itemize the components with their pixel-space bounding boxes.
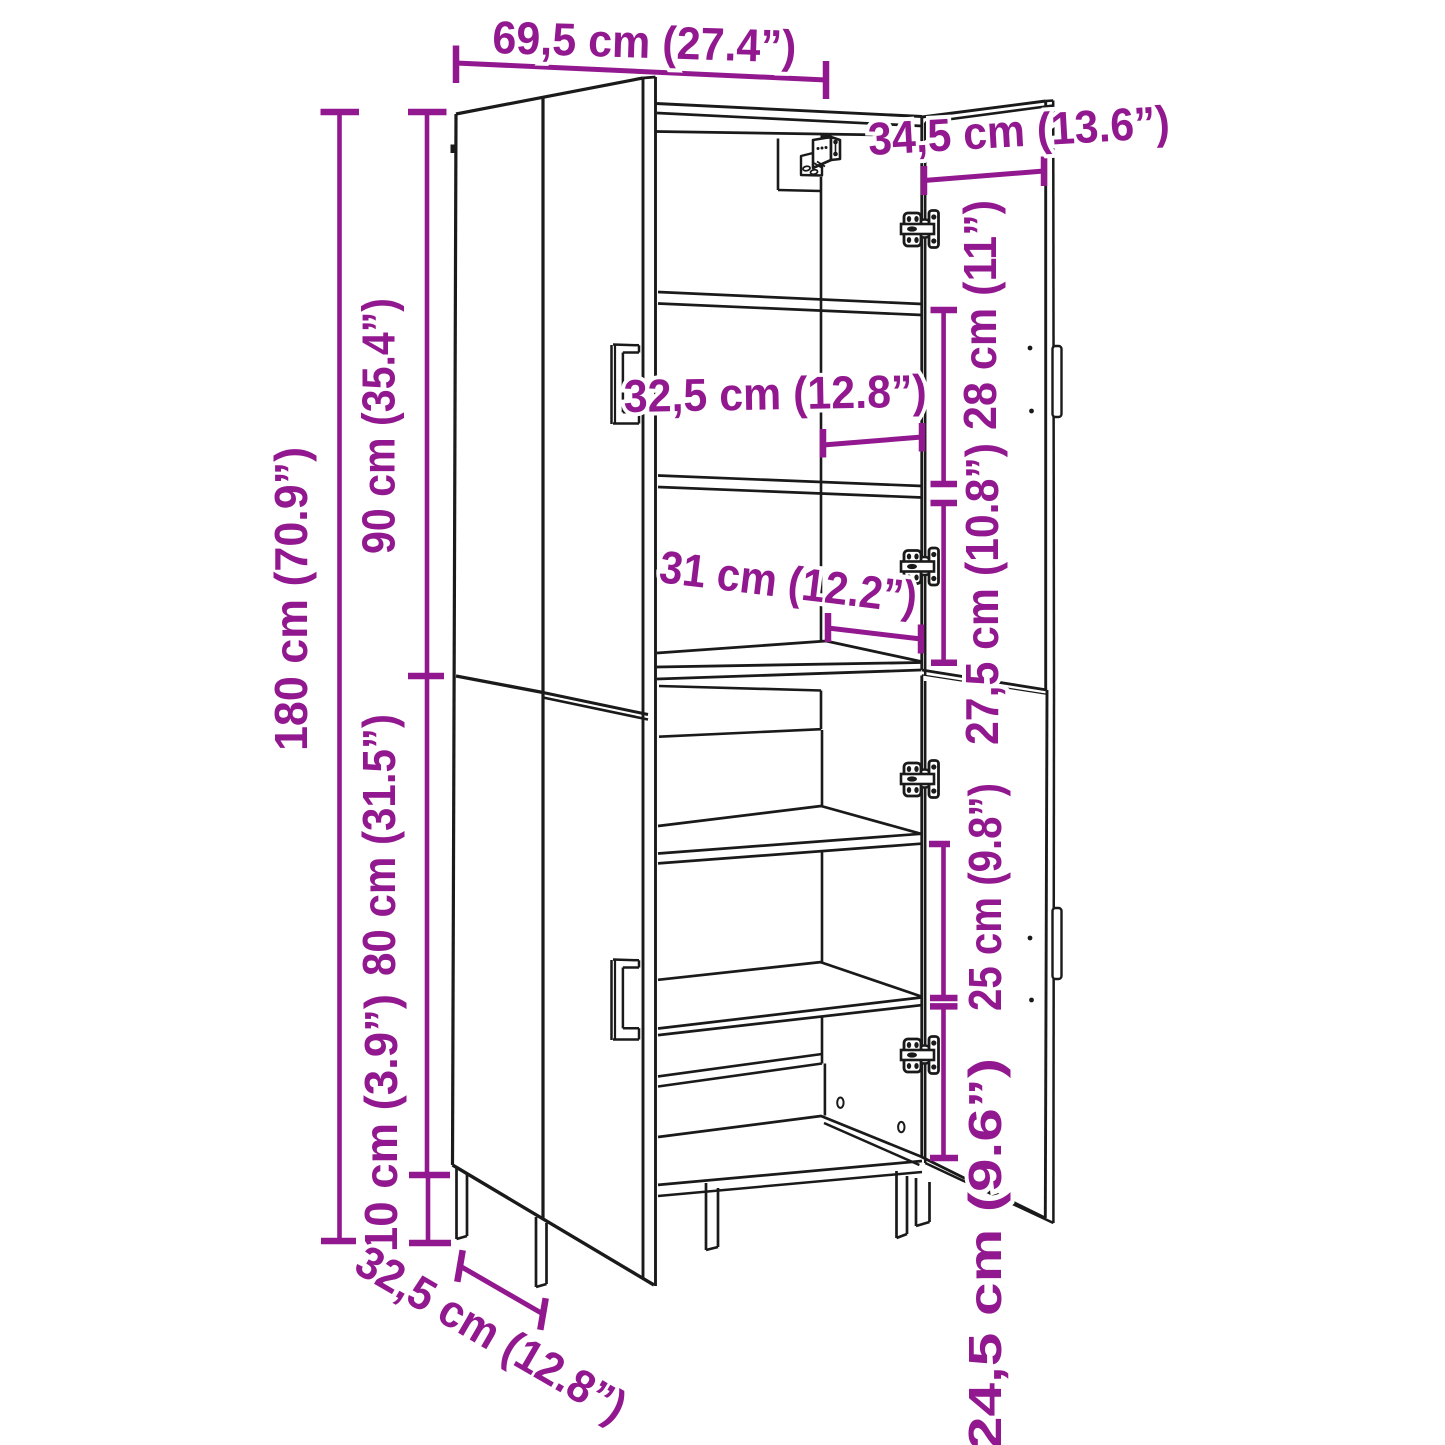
svg-text:24,5 cm (9.6”): 24,5 cm (9.6”) bbox=[959, 1058, 1011, 1445]
svg-text:80 cm (31.5”): 80 cm (31.5”) bbox=[353, 714, 405, 976]
svg-text:90 cm (35.4”): 90 cm (35.4”) bbox=[353, 298, 405, 554]
svg-text:32,5 cm (12.8”): 32,5 cm (12.8”) bbox=[623, 365, 927, 422]
svg-text:69,5 cm (27.4”): 69,5 cm (27.4”) bbox=[492, 11, 797, 73]
svg-text:28 cm (11”): 28 cm (11”) bbox=[954, 200, 1006, 430]
svg-text:27,5 cm (10.8”): 27,5 cm (10.8”) bbox=[956, 443, 1008, 745]
svg-text:25 cm (9.8”): 25 cm (9.8”) bbox=[959, 783, 1011, 1011]
svg-text:180 cm (70.9”): 180 cm (70.9”) bbox=[265, 447, 317, 751]
svg-text:10 cm (3.9”): 10 cm (3.9”) bbox=[355, 994, 407, 1252]
